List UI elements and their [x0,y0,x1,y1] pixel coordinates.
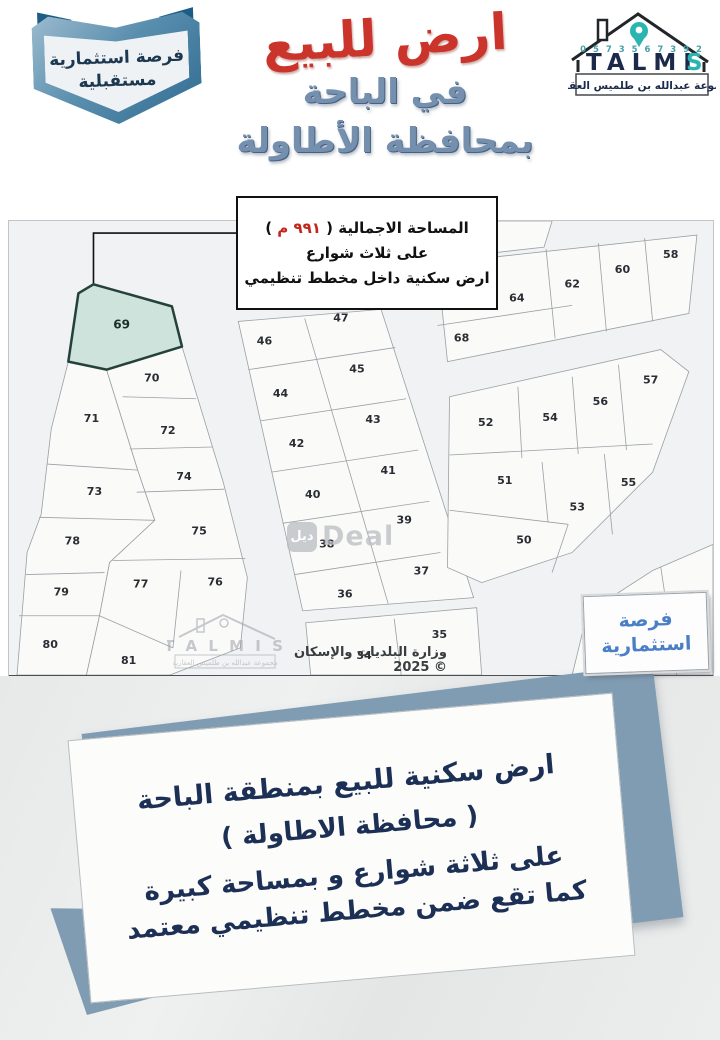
info-streets-line: على ثلاث شوارع [238,244,496,262]
title-governorate: بمحافظة الأطاولة [225,117,545,166]
plot-label: 53 [570,500,585,513]
plot-label: 60 [615,263,631,276]
investment-badge-line2: استثمارية [601,632,692,658]
plot-label: 62 [565,277,580,290]
plot-label: 76 [207,576,223,589]
plot-label: 57 [643,374,658,387]
info-area-label: المساحة الاجمالية [338,219,469,237]
logo-wordmark: TALMI [586,50,699,76]
land-info-box: المساحة الاجمالية ( ٩٩١ م ) على ثلاث شوا… [236,196,498,310]
deal-watermark-word: Deal [322,521,394,552]
plot-label: 74 [176,470,192,483]
plot-label: 55 [621,476,636,489]
plot-label: 72 [160,424,175,437]
plot-label: 51 [497,474,512,487]
talmis-watermark: T A L M I S مجموعة عبدالله بن طلميس العق… [167,611,285,671]
highlighted-plot-label: 69 [113,317,130,331]
info-area-line: المساحة الاجمالية ( ٩٩١ م ) [238,219,496,237]
info-zoning-line: ارض سكنية داخل مخطط تنظيمي [238,269,496,287]
plot-label: 39 [397,513,412,526]
title-land-for-sale: ارض للبيع [224,0,547,76]
info-paren-open: ( [321,219,338,237]
talmis-watermark-tagline: مجموعة عبدالله بن طلميس العقارية [172,659,278,667]
plot-label: 64 [509,291,525,304]
plot-label: 68 [454,332,469,345]
talmis-watermark-pin [220,619,228,627]
plot-label: 54 [542,411,558,424]
plot-label: 58 [663,248,678,261]
ribbon-line1: فرصة استثمارية [49,47,185,70]
plot-label: 44 [273,387,289,400]
plot-label: 78 [65,534,80,547]
plot-label: 47 [333,311,348,324]
plot-label: 71 [84,412,99,425]
logo-tagline: مجموعة عبدالله بن طلميس العقارية [568,80,716,92]
plot-label: 70 [144,372,160,385]
ministry-credit: وزارة البلديات والإسكان © 2025 [277,645,447,675]
plot-label: 56 [593,395,609,408]
plot-label: 79 [54,586,69,599]
page-title: ارض للبيع في الباحة بمحافظة الأطاولة [225,8,545,167]
plot-label: 45 [349,363,364,376]
investment-badge-line1: فرصة [618,608,673,633]
plot-label: 77 [133,578,148,591]
plot-label: 52 [478,416,493,429]
info-area-value: ٩٩١ م [277,219,321,237]
flyer-page: فرصة استثمارية مستقبلية ارض للبيع في الب… [0,0,720,1040]
talmis-logo: 0 5 7 3 5 6 7 3 9 2 TALMI S مجموعة عبدال… [568,4,716,100]
plot-label: 43 [365,413,380,426]
plot-label: 80 [43,638,59,651]
plot-label: 46 [257,335,273,348]
plot-label: 50 [516,533,532,546]
info-paren-close: ) [265,219,277,237]
logo-chimney-icon [598,20,607,40]
logo-wordmark-s: S [686,50,703,76]
talmis-watermark-word: T A L M I S [167,637,285,655]
description-card: ارض سكنية للبيع بمنطقة الباحة ( محافظة ا… [68,693,636,1004]
title-city: في الباحة [225,68,545,117]
plot-label: 40 [305,488,321,501]
bottom-section: ارض سكنية للبيع بمنطقة الباحة ( محافظة ا… [0,676,720,1040]
investment-ribbon-badge: فرصة استثمارية مستقبلية [31,9,203,127]
deal-watermark-square: ديل [287,522,317,552]
talmis-watermark-roof [179,615,275,639]
plot-label: 35 [432,628,447,641]
callout-line [93,233,238,284]
plot-label: 37 [414,565,429,578]
plot-label: 42 [289,437,304,450]
plot-label: 75 [191,524,206,537]
deal-watermark: ديل Deal [287,521,394,552]
plot-label: 81 [121,654,136,667]
plot-label: 41 [380,464,395,477]
location-pin-dot [636,27,643,34]
plot-label: 36 [337,588,353,601]
investment-badge: فرصة استثمارية [583,592,710,674]
plot-label: 73 [87,485,102,498]
ribbon-line2: مستقبلية [78,71,157,92]
